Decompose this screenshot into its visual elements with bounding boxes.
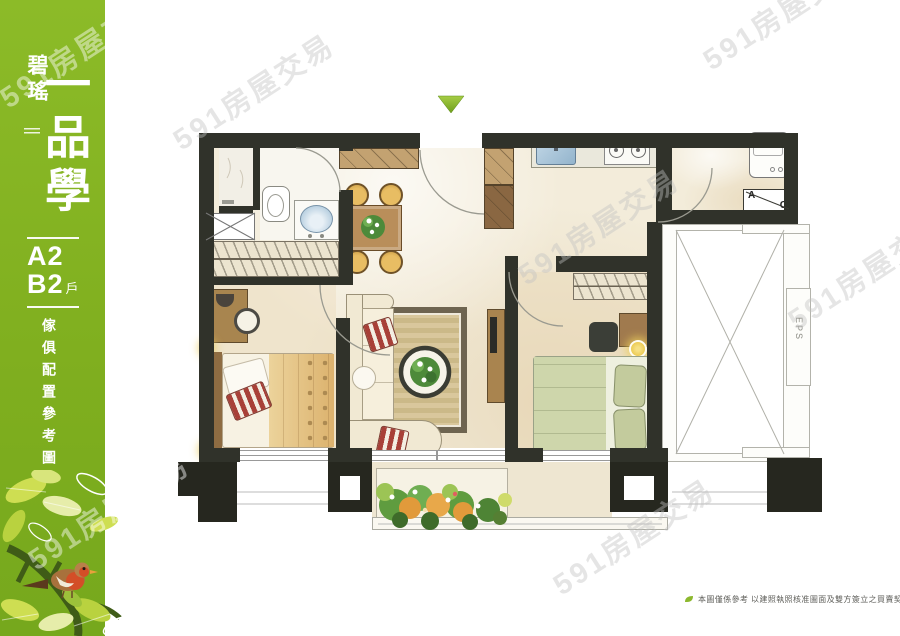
coffee-table bbox=[401, 348, 449, 396]
marble-veins bbox=[227, 158, 243, 188]
ac-diagonal bbox=[746, 192, 789, 209]
disclaimer-text: 本圖僅係參考 以建照執照核准圖面及雙方簽立之買賣契約書為準 bbox=[698, 594, 900, 605]
balcony-flowers bbox=[376, 483, 512, 530]
duct-x-mark bbox=[206, 213, 255, 240]
plan-linework bbox=[0, 0, 900, 636]
leaf-icon bbox=[684, 595, 694, 604]
dining-centerpiece bbox=[361, 215, 385, 239]
door-swing-arcs bbox=[296, 148, 712, 355]
elevator-x-mark bbox=[676, 230, 784, 454]
floor-plan-page: 碧瑤 一品學 A2 B2戶 傢俱配置參考圖 bbox=[0, 0, 900, 636]
floor-plan: EPS bbox=[0, 0, 900, 636]
disclaimer: 本圖僅係參考 以建照執照核准圖面及雙方簽立之買賣契約書為準 bbox=[684, 594, 900, 605]
